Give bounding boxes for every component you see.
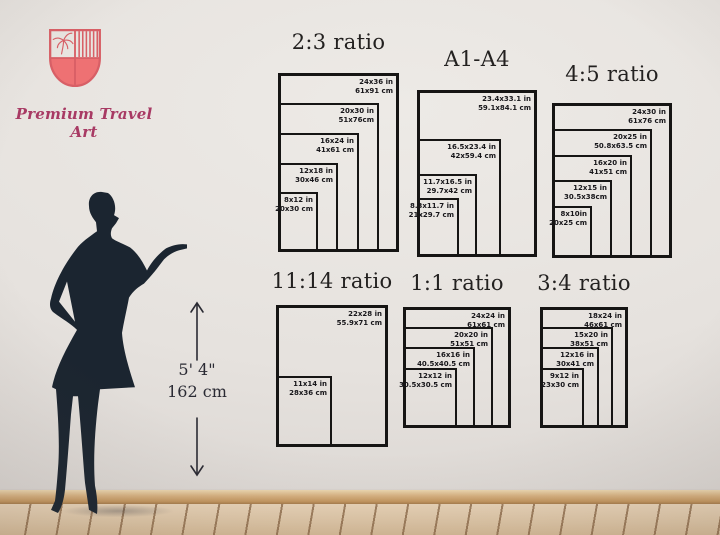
size-box-8.3x11.7in: 8.3x11.7 in21x29.7 cm (417, 198, 459, 257)
size-label: 16x24 in41x61 cm (316, 137, 354, 155)
size-panel-4-5: 24x30 in61x76 cm20x25 in50.8x63.5 cm16x2… (552, 103, 672, 258)
size-box-8x10in: 8x10in20x25 cm (552, 206, 592, 258)
size-label: 9x12 in23x30 cm (541, 372, 579, 390)
brand-name: Premium Travel Art (8, 105, 160, 141)
size-label: 24x30 in61x76 cm (628, 108, 666, 126)
size-label: 16.5x23.4 in42x59.4 cm (447, 143, 496, 161)
size-label: 12x18 in30x46 cm (295, 167, 333, 185)
panel-title-4-5: 4:5 ratio (502, 62, 720, 86)
size-label: 8x10in20x25 cm (549, 210, 587, 228)
height-imperial: 5' 4" (156, 360, 238, 379)
size-label: 22x28 in55.9x71 cm (337, 310, 382, 328)
size-panel-11-14: 22x28 in55.9x71 cm11x14 in28x36 cm (276, 305, 388, 447)
size-label: 16x16 in40.5x40.5 cm (417, 351, 470, 369)
size-label: 20x25 in50.8x63.5 cm (594, 133, 647, 151)
size-label: 8.3x11.7 in21x29.7 cm (409, 202, 454, 220)
size-label: 11x14 in28x36 cm (289, 380, 327, 398)
size-label: 12x15 in30.5x38cm (564, 184, 607, 202)
size-panel-3-4: 18x24 in46x61 cm15x20 in38x51 cm12x16 in… (540, 307, 628, 428)
size-label: 11.7x16.5 in29.7x42 cm (423, 178, 472, 196)
size-panel-2-3: 24x36 in61x91 cm20x30 in51x76cm16x24 in4… (278, 73, 399, 252)
size-box-9x12in: 9x12 in23x30 cm (540, 368, 584, 428)
size-label: 23.4x33.1 in59.1x84.1 cm (478, 95, 531, 113)
size-label: 12x12 in30.5x30.5 cm (399, 372, 452, 390)
size-label: 20x30 in51x76cm (339, 107, 374, 125)
size-label: 24x36 in61x91 cm (355, 78, 393, 96)
size-box-12x12in: 12x12 in30.5x30.5 cm (403, 368, 457, 428)
palm-tree-icon (53, 33, 73, 54)
shield-crest-icon (47, 27, 103, 87)
size-box-11x14in: 11x14 in28x36 cm (276, 376, 332, 447)
height-metric: 162 cm (156, 382, 238, 401)
panel-title-3-4: 3:4 ratio (474, 271, 694, 295)
size-label: 16x20 in41x51 cm (589, 159, 627, 177)
woman-silhouette (44, 189, 189, 521)
size-panel-a1-a4: 23.4x33.1 in59.1x84.1 cm16.5x23.4 in42x5… (417, 90, 537, 257)
size-panel-1-1: 24x24 in61x61 cm20x20 in51x51 cm16x16 in… (403, 307, 511, 428)
size-label: 8x12 in20x30 cm (275, 196, 313, 214)
size-box-8x12in: 8x12 in20x30 cm (278, 192, 318, 252)
size-guide-poster: Premium Travel Art 5' 4" 162 cm 2:3 rati… (0, 0, 720, 535)
size-label: 12x16 in30x41 cm (556, 351, 594, 369)
shield-stripes (79, 31, 97, 57)
